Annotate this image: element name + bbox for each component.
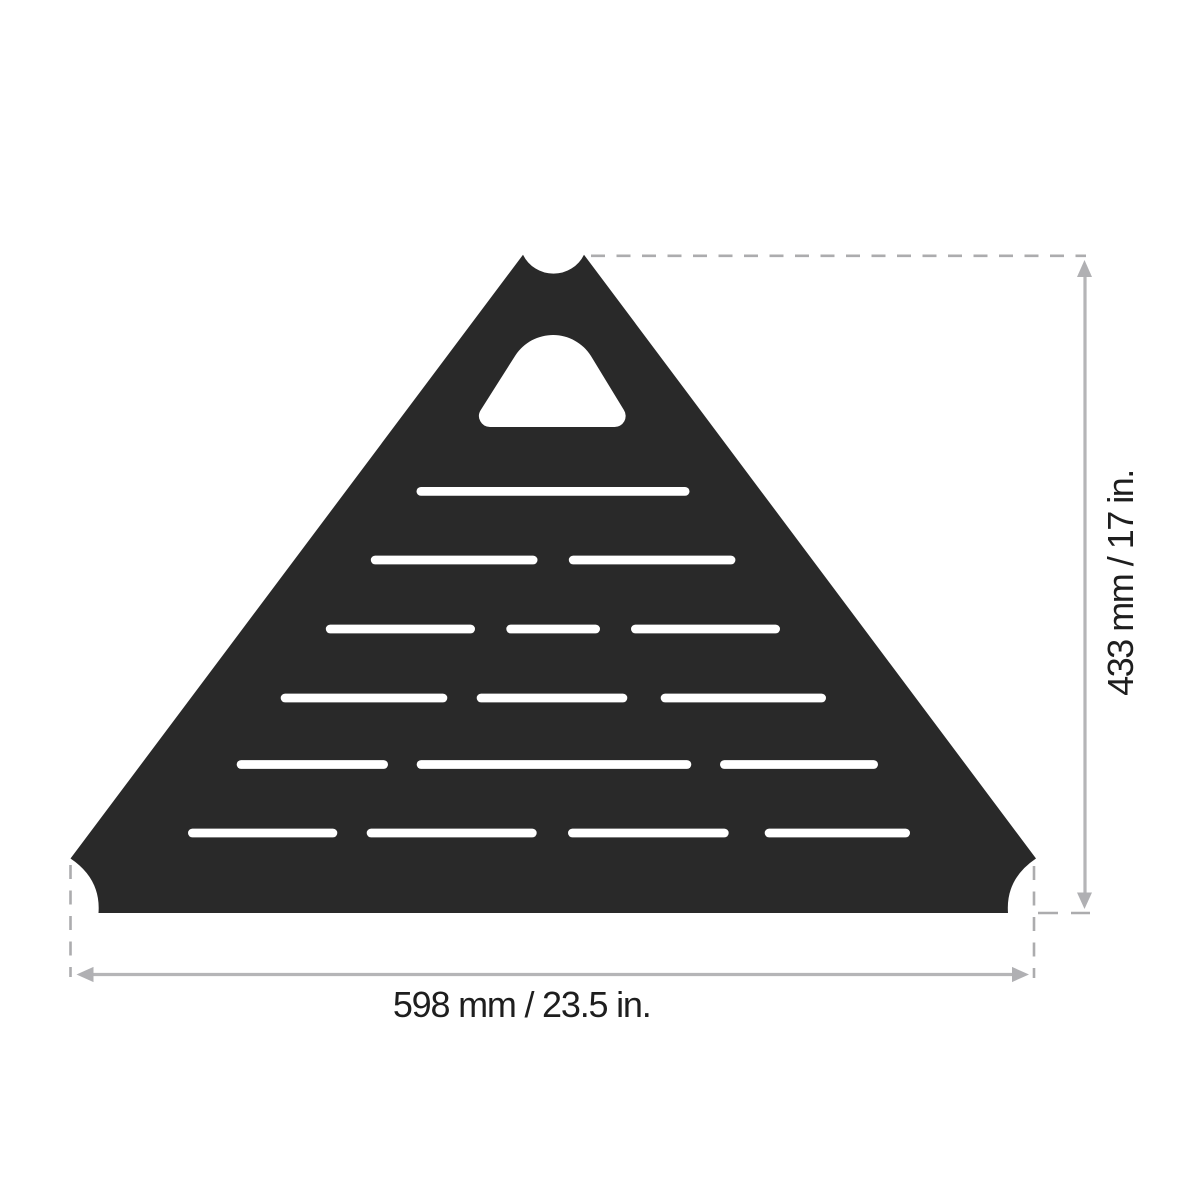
svg-text:598 mm / 23.5 in.: 598 mm / 23.5 in. <box>393 984 651 1025</box>
svg-text:433 mm / 17 in.: 433 mm / 17 in. <box>1100 470 1141 696</box>
